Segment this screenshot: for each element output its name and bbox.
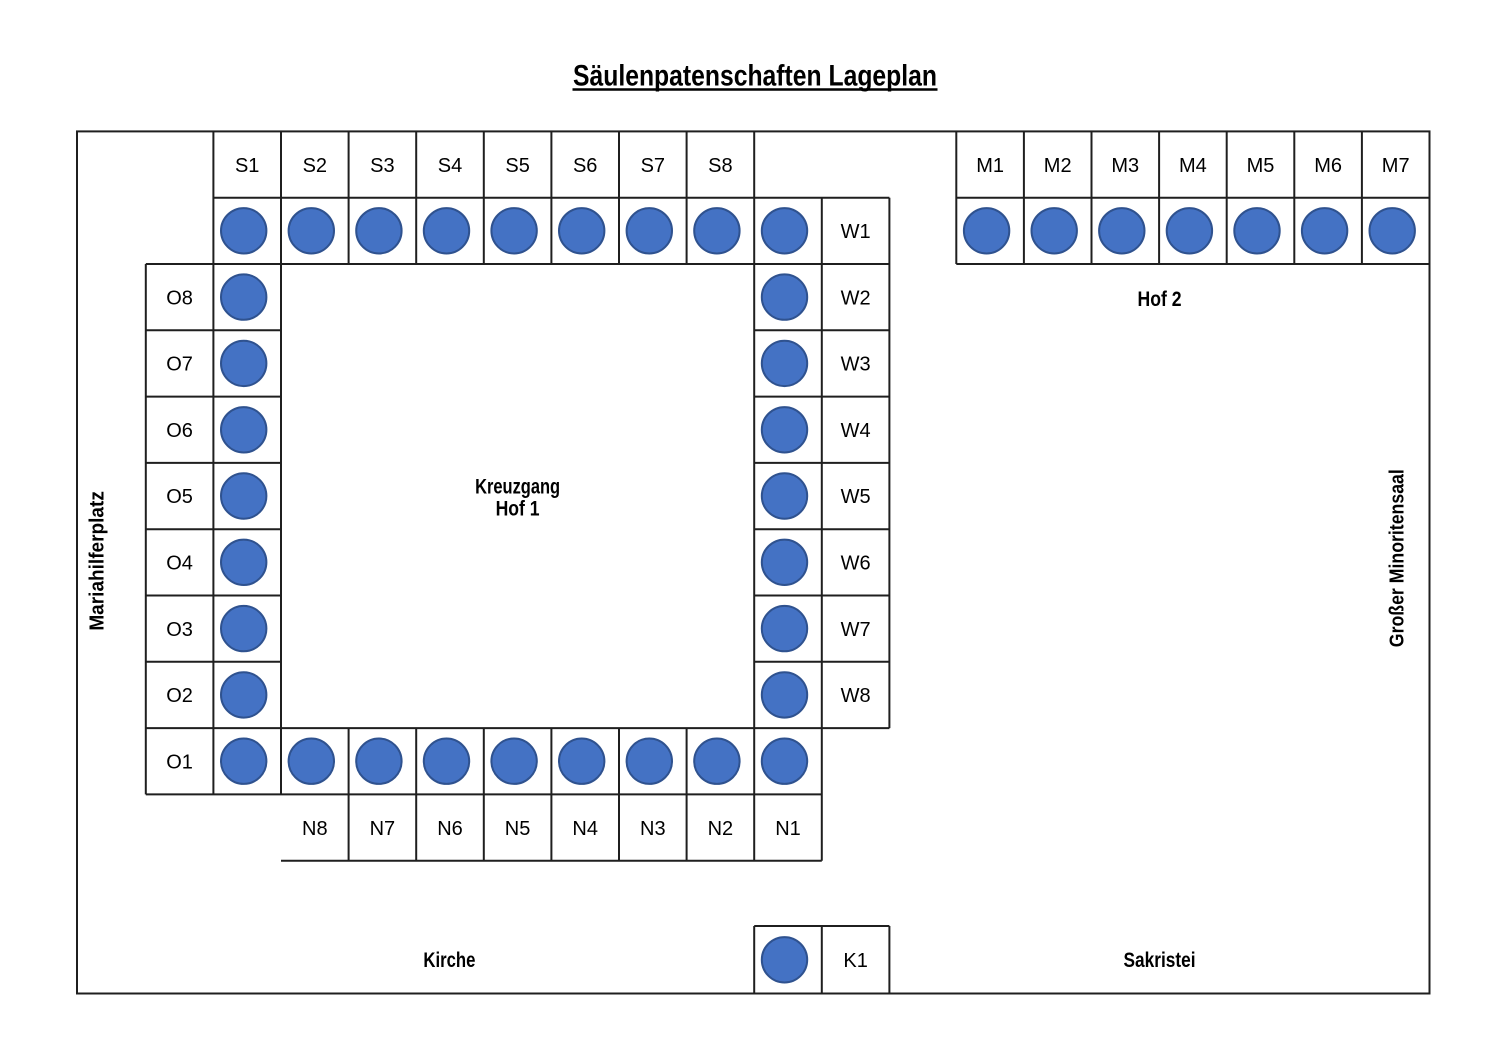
svg-text:M2: M2 <box>1044 155 1072 177</box>
svg-text:W2: W2 <box>841 287 871 309</box>
svg-text:O1: O1 <box>166 752 193 774</box>
svg-text:M7: M7 <box>1382 155 1410 177</box>
svg-text:W8: W8 <box>841 685 871 707</box>
svg-text:M3: M3 <box>1111 155 1139 177</box>
svg-text:S2: S2 <box>303 155 327 177</box>
svg-text:S7: S7 <box>641 155 665 177</box>
svg-text:W4: W4 <box>841 420 871 442</box>
svg-text:W3: W3 <box>841 354 871 376</box>
svg-text:Mariahilferplatz: Mariahilferplatz <box>87 491 109 631</box>
svg-text:N7: N7 <box>370 818 396 840</box>
svg-text:M4: M4 <box>1179 155 1207 177</box>
svg-text:O8: O8 <box>166 287 193 309</box>
svg-text:N6: N6 <box>437 818 463 840</box>
svg-text:O3: O3 <box>166 619 193 641</box>
svg-text:O7: O7 <box>166 354 193 376</box>
svg-text:N1: N1 <box>775 818 801 840</box>
svg-text:Kreuzgang: Kreuzgang <box>475 476 560 499</box>
svg-text:Hof 1: Hof 1 <box>496 498 540 521</box>
svg-text:S1: S1 <box>235 155 259 177</box>
svg-text:M5: M5 <box>1247 155 1275 177</box>
svg-text:N3: N3 <box>640 818 666 840</box>
svg-text:M1: M1 <box>976 155 1004 177</box>
svg-text:O2: O2 <box>166 685 193 707</box>
svg-text:S6: S6 <box>573 155 597 177</box>
svg-text:O6: O6 <box>166 420 193 442</box>
svg-text:S3: S3 <box>370 155 394 177</box>
svg-text:O4: O4 <box>166 553 193 575</box>
svg-text:N5: N5 <box>505 818 531 840</box>
svg-text:S4: S4 <box>438 155 462 177</box>
svg-text:N8: N8 <box>302 818 328 840</box>
svg-text:N4: N4 <box>572 818 598 840</box>
svg-text:Großer Minoritensaal: Großer Minoritensaal <box>1387 469 1409 647</box>
svg-text:K1: K1 <box>843 950 867 972</box>
svg-text:Hof 2: Hof 2 <box>1138 288 1182 311</box>
svg-text:M6: M6 <box>1314 155 1342 177</box>
svg-text:O5: O5 <box>166 486 193 508</box>
svg-text:S8: S8 <box>708 155 732 177</box>
svg-text:W6: W6 <box>841 553 871 575</box>
svg-text:Kirche: Kirche <box>423 949 475 972</box>
svg-text:W1: W1 <box>841 221 871 243</box>
svg-text:W5: W5 <box>841 486 871 508</box>
svg-text:N2: N2 <box>708 818 734 840</box>
svg-text:Sakristei: Sakristei <box>1124 949 1196 972</box>
svg-text:Säulenpatenschaften Lageplan: Säulenpatenschaften Lageplan <box>573 60 937 93</box>
svg-text:S5: S5 <box>505 155 529 177</box>
svg-text:W7: W7 <box>841 619 871 641</box>
